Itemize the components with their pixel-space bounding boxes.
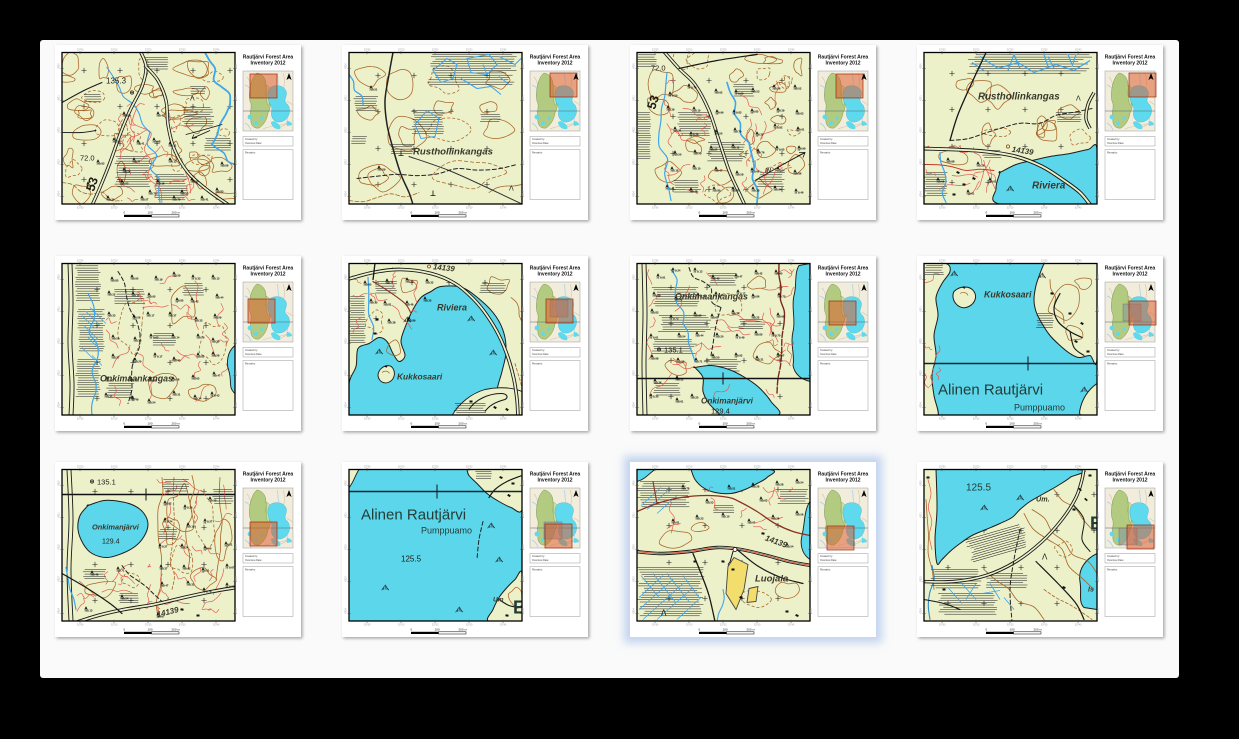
svg-text:6802: 6802 [523, 544, 525, 550]
svg-text:53700: 53700 [77, 418, 84, 420]
svg-text:53740: 53740 [500, 467, 507, 469]
svg-text:53710: 53710 [111, 625, 118, 627]
svg-text:135.1: 135.1 [664, 345, 683, 354]
svg-text:9.38: 9.38 [754, 189, 760, 193]
svg-text:9.59: 9.59 [175, 273, 181, 277]
svg-text:9.91: 9.91 [660, 275, 666, 279]
svg-text:53700: 53700 [77, 208, 84, 210]
svg-text:6802: 6802 [523, 127, 525, 133]
svg-text:9.81: 9.81 [674, 521, 680, 525]
svg-text:53720: 53720 [145, 260, 152, 262]
svg-text:Created by:: Created by: [820, 349, 833, 352]
svg-text:9.36: 9.36 [136, 338, 142, 342]
svg-text:6804: 6804 [523, 191, 525, 197]
svg-text:53710: 53710 [111, 467, 118, 469]
svg-text:9.37: 9.37 [734, 189, 740, 193]
svg-text:9.42: 9.42 [185, 567, 191, 571]
svg-text:6802: 6802 [811, 337, 813, 343]
svg-text:53740: 53740 [213, 208, 220, 210]
svg-text:Created by:: Created by: [1107, 555, 1120, 558]
svg-text:6803: 6803 [236, 159, 238, 165]
svg-text:9.61: 9.61 [653, 335, 659, 339]
svg-text:Alinen Rautjärvi: Alinen Rautjärvi [938, 381, 1043, 398]
svg-text:9.54: 9.54 [680, 334, 686, 338]
svg-text:9.44: 9.44 [698, 333, 704, 337]
svg-text:6802: 6802 [59, 544, 61, 550]
svg-text:9.61: 9.61 [678, 399, 684, 403]
svg-text:Inventory 2012: Inventory 2012 [1112, 61, 1147, 67]
svg-text:9.10: 9.10 [695, 109, 701, 113]
svg-text:53740: 53740 [1075, 418, 1082, 420]
svg-text:9.74: 9.74 [183, 546, 189, 550]
svg-text:200 m: 200 m [1034, 627, 1043, 631]
svg-text:53700: 53700 [652, 625, 659, 627]
svg-text:100: 100 [148, 627, 153, 631]
svg-text:53740: 53740 [213, 260, 220, 262]
svg-text:6800: 6800 [633, 63, 635, 69]
svg-text:53730: 53730 [1041, 625, 1048, 627]
svg-text:6803: 6803 [59, 159, 61, 165]
svg-text:6801: 6801 [59, 512, 61, 518]
svg-text:6804: 6804 [811, 191, 813, 197]
svg-text:53720: 53720 [720, 467, 727, 469]
svg-text:9.27: 9.27 [712, 148, 718, 152]
svg-text:9.35: 9.35 [372, 300, 378, 304]
svg-text:6803: 6803 [921, 159, 923, 165]
svg-text:9.58: 9.58 [125, 170, 131, 174]
svg-text:Rusthollinkangas: Rusthollinkangas [978, 92, 1060, 103]
svg-text:135.1: 135.1 [97, 478, 116, 487]
svg-text:9.31: 9.31 [189, 583, 195, 587]
svg-text:6800: 6800 [633, 273, 635, 279]
svg-text:6802: 6802 [921, 544, 923, 550]
svg-text:6803: 6803 [346, 159, 348, 165]
svg-text:9.33: 9.33 [110, 313, 116, 317]
svg-text:100: 100 [148, 421, 153, 425]
svg-text:6800: 6800 [523, 63, 525, 69]
svg-text:9.47: 9.47 [669, 187, 675, 191]
svg-text:9.58: 9.58 [214, 353, 220, 357]
svg-text:9.49: 9.49 [133, 397, 139, 401]
svg-text:9.32: 9.32 [678, 377, 684, 381]
svg-text:9.74: 9.74 [167, 520, 173, 524]
svg-text:6803: 6803 [523, 369, 525, 375]
svg-text:9.41: 9.41 [139, 142, 145, 146]
svg-text:9.37: 9.37 [114, 355, 120, 359]
svg-text:9.55: 9.55 [115, 140, 121, 144]
svg-text:6804: 6804 [633, 401, 635, 407]
svg-text:53730: 53730 [466, 208, 473, 210]
svg-text:53700: 53700 [364, 208, 371, 210]
svg-text:53730: 53730 [179, 208, 186, 210]
svg-text:53720: 53720 [432, 467, 439, 469]
svg-text:9.17: 9.17 [149, 313, 155, 317]
svg-text:9.31: 9.31 [175, 392, 181, 396]
svg-text:9.77: 9.77 [388, 280, 394, 284]
svg-text:6803: 6803 [811, 369, 813, 375]
svg-text:6803: 6803 [346, 369, 348, 375]
svg-text:6801: 6801 [811, 305, 813, 311]
svg-text:9.14: 9.14 [196, 396, 202, 400]
svg-text:Overview Date:: Overview Date: [820, 352, 837, 355]
svg-text:53700: 53700 [652, 50, 659, 52]
svg-text:53740: 53740 [500, 625, 507, 627]
svg-text:53730: 53730 [179, 467, 186, 469]
svg-text:9.46: 9.46 [408, 302, 414, 306]
svg-text:9.40: 9.40 [714, 276, 720, 280]
svg-text:53700: 53700 [652, 208, 659, 210]
svg-text:100: 100 [1010, 210, 1015, 214]
svg-text:Inventory 2012: Inventory 2012 [538, 61, 573, 67]
svg-text:6801: 6801 [523, 95, 525, 101]
svg-text:53740: 53740 [1075, 50, 1082, 52]
svg-text:6800: 6800 [523, 273, 525, 279]
svg-text:9.35: 9.35 [758, 133, 764, 137]
svg-text:9.82: 9.82 [777, 126, 783, 130]
svg-text:6803: 6803 [921, 576, 923, 582]
svg-text:9.63: 9.63 [153, 335, 159, 339]
svg-text:53730: 53730 [466, 50, 473, 52]
svg-text:9.83: 9.83 [218, 190, 224, 194]
svg-text:9.57: 9.57 [779, 353, 785, 357]
svg-text:6804: 6804 [921, 401, 923, 407]
svg-text:53740: 53740 [500, 418, 507, 420]
svg-text:6801: 6801 [59, 305, 61, 311]
svg-text:9.54: 9.54 [150, 400, 156, 404]
svg-text:9.82: 9.82 [166, 502, 172, 506]
svg-text:9.98: 9.98 [653, 356, 659, 360]
svg-text:Remarks:: Remarks: [532, 569, 543, 572]
svg-text:6800: 6800 [921, 63, 923, 69]
svg-text:53730: 53730 [179, 50, 186, 52]
svg-text:53710: 53710 [973, 625, 980, 627]
svg-text:53720: 53720 [720, 260, 727, 262]
svg-text:9.26: 9.26 [979, 164, 985, 168]
svg-text:9.27: 9.27 [162, 545, 168, 549]
svg-text:Overview Date:: Overview Date: [245, 559, 262, 562]
svg-text:6804: 6804 [346, 401, 348, 407]
svg-text:9.26: 9.26 [774, 517, 780, 521]
svg-text:6801: 6801 [921, 512, 923, 518]
svg-text:Inventory 2012: Inventory 2012 [1112, 478, 1147, 484]
svg-text:72.0: 72.0 [651, 64, 666, 73]
svg-text:53700: 53700 [939, 208, 946, 210]
svg-text:6801: 6801 [59, 95, 61, 101]
svg-text:53710: 53710 [398, 625, 405, 627]
svg-text:9.12: 9.12 [734, 146, 740, 150]
svg-text:100: 100 [722, 421, 727, 425]
svg-text:9.98: 9.98 [155, 140, 161, 144]
svg-text:53720: 53720 [432, 50, 439, 52]
svg-text:6801: 6801 [236, 95, 238, 101]
svg-text:9.20: 9.20 [718, 334, 724, 338]
svg-text:9.61: 9.61 [969, 192, 975, 196]
svg-text:53740: 53740 [500, 260, 507, 262]
svg-text:53730: 53730 [1041, 418, 1048, 420]
svg-text:6802: 6802 [811, 544, 813, 550]
svg-text:200 m: 200 m [459, 421, 468, 425]
svg-text:53700: 53700 [364, 260, 371, 262]
svg-text:6801: 6801 [1098, 512, 1100, 518]
svg-text:53710: 53710 [686, 260, 693, 262]
svg-text:9.20: 9.20 [214, 339, 220, 343]
svg-text:9.85: 9.85 [113, 278, 119, 282]
svg-text:9.39: 9.39 [669, 108, 675, 112]
svg-text:9.50: 9.50 [676, 153, 682, 157]
svg-text:200 m: 200 m [459, 627, 468, 631]
svg-text:53700: 53700 [77, 260, 84, 262]
svg-text:53720: 53720 [145, 208, 152, 210]
svg-text:9.39: 9.39 [779, 109, 785, 113]
svg-text:Created by:: Created by: [1107, 349, 1120, 352]
svg-text:6804: 6804 [633, 191, 635, 197]
svg-text:9.61: 9.61 [750, 521, 756, 525]
svg-text:6804: 6804 [236, 401, 238, 407]
svg-text:9.16: 9.16 [159, 182, 165, 186]
svg-text:53700: 53700 [364, 50, 371, 52]
svg-text:9.32: 9.32 [107, 394, 113, 398]
svg-text:6800: 6800 [811, 273, 813, 279]
svg-text:53720: 53720 [1007, 467, 1014, 469]
svg-text:9.85: 9.85 [178, 298, 184, 302]
svg-text:9.18: 9.18 [673, 169, 679, 173]
svg-text:9.86: 9.86 [754, 294, 760, 298]
svg-text:9.51: 9.51 [730, 487, 736, 491]
svg-text:53710: 53710 [398, 50, 405, 52]
svg-text:9.13: 9.13 [697, 269, 703, 273]
svg-text:9.80: 9.80 [199, 354, 205, 358]
svg-text:53700: 53700 [652, 260, 659, 262]
svg-text:9.79: 9.79 [151, 192, 157, 196]
svg-text:9.67: 9.67 [713, 315, 719, 319]
svg-text:9.78: 9.78 [684, 487, 690, 491]
svg-text:9.64: 9.64 [779, 169, 785, 173]
svg-text:6801: 6801 [346, 95, 348, 101]
svg-text:IN: IN [765, 169, 772, 175]
svg-text:9.48: 9.48 [692, 190, 698, 194]
svg-text:53720: 53720 [145, 50, 152, 52]
svg-text:9.43: 9.43 [214, 393, 220, 397]
svg-text:9.23: 9.23 [183, 192, 189, 196]
svg-text:6803: 6803 [633, 369, 635, 375]
svg-text:Rusthollinkangas: Rusthollinkangas [413, 147, 493, 158]
svg-text:9.10: 9.10 [134, 293, 140, 297]
svg-text:Λ: Λ [190, 96, 195, 103]
svg-text:9.88: 9.88 [949, 160, 955, 164]
svg-text:6800: 6800 [811, 480, 813, 486]
svg-text:Remarks:: Remarks: [1107, 362, 1118, 365]
svg-text:Riviera: Riviera [1032, 181, 1066, 192]
svg-text:53740: 53740 [788, 260, 795, 262]
svg-text:53740: 53740 [1075, 208, 1082, 210]
svg-text:9.81: 9.81 [386, 302, 392, 306]
svg-text:6802: 6802 [633, 127, 635, 133]
svg-text:6801: 6801 [523, 512, 525, 518]
svg-text:53740: 53740 [788, 467, 795, 469]
svg-text:Remarks:: Remarks: [1107, 569, 1118, 572]
svg-text:6802: 6802 [1098, 544, 1100, 550]
svg-text:9.22: 9.22 [754, 315, 760, 319]
svg-text:Remarks:: Remarks: [245, 152, 256, 155]
svg-text:6804: 6804 [921, 608, 923, 614]
svg-text:53720: 53720 [432, 260, 439, 262]
svg-text:9.78: 9.78 [206, 590, 212, 594]
svg-text:53740: 53740 [213, 625, 220, 627]
svg-text:6801: 6801 [811, 512, 813, 518]
svg-text:53700: 53700 [364, 625, 371, 627]
svg-text:Overview Date:: Overview Date: [245, 352, 262, 355]
svg-text:100: 100 [1010, 627, 1015, 631]
svg-text:6802: 6802 [236, 127, 238, 133]
svg-text:6803: 6803 [59, 369, 61, 375]
svg-text:53730: 53730 [754, 208, 761, 210]
svg-text:53720: 53720 [1007, 418, 1014, 420]
svg-text:Remarks:: Remarks: [1107, 152, 1118, 155]
svg-text:53730: 53730 [466, 260, 473, 262]
svg-text:Remarks:: Remarks: [245, 569, 256, 572]
svg-text:100: 100 [1010, 421, 1015, 425]
svg-text:Remarks:: Remarks: [820, 569, 831, 572]
svg-text:6803: 6803 [236, 576, 238, 582]
svg-text:Created by:: Created by: [245, 349, 258, 352]
svg-text:9.63: 9.63 [798, 112, 804, 116]
svg-text:6802: 6802 [236, 544, 238, 550]
svg-text:53740: 53740 [500, 50, 507, 52]
svg-text:Remarks:: Remarks: [820, 362, 831, 365]
svg-text:6800: 6800 [1098, 63, 1100, 69]
svg-text:53710: 53710 [111, 418, 118, 420]
svg-text:6800: 6800 [523, 480, 525, 486]
svg-text:9.90: 9.90 [206, 547, 212, 551]
svg-text:100: 100 [435, 210, 440, 214]
svg-text:53740: 53740 [788, 50, 795, 52]
svg-text:9.85: 9.85 [366, 282, 372, 286]
svg-text:6803: 6803 [59, 576, 61, 582]
svg-text:53740: 53740 [1075, 467, 1082, 469]
svg-text:6804: 6804 [523, 401, 525, 407]
svg-text:53710: 53710 [686, 625, 693, 627]
svg-text:125.5: 125.5 [401, 555, 422, 564]
svg-text:Overview Date:: Overview Date: [820, 142, 837, 145]
svg-text:Is: Is [1088, 587, 1094, 594]
svg-text:53700: 53700 [939, 625, 946, 627]
svg-text:53700: 53700 [77, 467, 84, 469]
svg-text:9.69: 9.69 [738, 92, 744, 96]
svg-text:9.19: 9.19 [157, 277, 163, 281]
svg-text:Overview Date:: Overview Date: [820, 559, 837, 562]
svg-text:9.71: 9.71 [697, 359, 703, 363]
svg-text:53730: 53730 [466, 418, 473, 420]
svg-text:6804: 6804 [633, 608, 635, 614]
svg-text:Overview Date:: Overview Date: [1107, 142, 1124, 145]
svg-text:9.26: 9.26 [754, 485, 760, 489]
svg-text:9.37: 9.37 [171, 313, 177, 317]
svg-text:Overview Date:: Overview Date: [532, 559, 549, 562]
svg-text:9.56: 9.56 [135, 315, 141, 319]
svg-text:9.95: 9.95 [133, 276, 139, 280]
svg-text:Inventory 2012: Inventory 2012 [250, 478, 285, 484]
svg-text:6800: 6800 [236, 63, 238, 69]
svg-text:9.99: 9.99 [718, 111, 724, 115]
svg-text:9.23: 9.23 [698, 517, 704, 521]
svg-text:Created by:: Created by: [245, 555, 258, 558]
svg-text:9.69: 9.69 [223, 164, 229, 168]
svg-text:Λ: Λ [1076, 96, 1081, 103]
svg-text:9.35: 9.35 [426, 298, 432, 302]
svg-text:Onkimaankangas: Onkimaankangas [100, 373, 173, 383]
svg-text:6801: 6801 [633, 512, 635, 518]
svg-text:Created by:: Created by: [245, 138, 258, 141]
svg-text:Overview Date:: Overview Date: [532, 352, 549, 355]
svg-text:9.93: 9.93 [123, 182, 129, 186]
svg-text:53730: 53730 [1041, 260, 1048, 262]
svg-text:6800: 6800 [59, 273, 61, 279]
svg-text:9.59: 9.59 [216, 315, 222, 319]
svg-text:53710: 53710 [973, 418, 980, 420]
svg-text:9.83: 9.83 [653, 310, 659, 314]
svg-text:200 m: 200 m [1034, 210, 1043, 214]
svg-text:6803: 6803 [346, 576, 348, 582]
svg-text:53740: 53740 [1075, 260, 1082, 262]
svg-text:9.24: 9.24 [675, 268, 681, 272]
svg-text:6803: 6803 [811, 576, 813, 582]
svg-text:Overview Date:: Overview Date: [532, 142, 549, 145]
svg-text:6801: 6801 [633, 305, 635, 311]
svg-text:9.43: 9.43 [193, 299, 199, 303]
svg-text:53700: 53700 [364, 418, 371, 420]
svg-text:53740: 53740 [788, 208, 795, 210]
svg-text:53700: 53700 [364, 467, 371, 469]
svg-text:Remarks:: Remarks: [245, 362, 256, 365]
svg-text:6803: 6803 [633, 576, 635, 582]
svg-text:53720: 53720 [720, 418, 727, 420]
svg-text:9.35: 9.35 [408, 279, 414, 283]
svg-text:Inventory 2012: Inventory 2012 [250, 271, 285, 277]
svg-text:129.4: 129.4 [711, 406, 730, 415]
svg-text:100: 100 [722, 210, 727, 214]
svg-text:9.56: 9.56 [775, 87, 781, 91]
svg-text:200 m: 200 m [746, 210, 755, 214]
svg-text:53730: 53730 [179, 260, 186, 262]
svg-text:6800: 6800 [346, 63, 348, 69]
svg-text:9.73: 9.73 [673, 316, 679, 320]
svg-text:Created by:: Created by: [532, 349, 545, 352]
svg-text:9.45: 9.45 [777, 271, 783, 275]
svg-text:100: 100 [722, 627, 727, 631]
svg-text:9.36: 9.36 [187, 506, 193, 510]
svg-text:9.89: 9.89 [125, 114, 131, 118]
svg-text:6801: 6801 [523, 305, 525, 311]
svg-text:6803: 6803 [236, 369, 238, 375]
svg-text:9.47: 9.47 [163, 584, 169, 588]
svg-text:9.56: 9.56 [114, 336, 120, 340]
svg-text:200 m: 200 m [746, 627, 755, 631]
svg-text:6804: 6804 [59, 401, 61, 407]
svg-text:53700: 53700 [939, 50, 946, 52]
svg-text:9.47: 9.47 [737, 274, 743, 278]
svg-text:53720: 53720 [145, 625, 152, 627]
svg-text:53740: 53740 [213, 467, 220, 469]
svg-text:6803: 6803 [1098, 576, 1100, 582]
svg-text:Inventory 2012: Inventory 2012 [250, 61, 285, 67]
svg-text:53710: 53710 [686, 50, 693, 52]
svg-text:9.86: 9.86 [796, 172, 802, 176]
svg-text:125.5: 125.5 [966, 483, 991, 494]
svg-text:6802: 6802 [236, 337, 238, 343]
svg-text:9.76: 9.76 [199, 335, 205, 339]
svg-text:6802: 6802 [346, 127, 348, 133]
svg-text:53730: 53730 [179, 418, 186, 420]
